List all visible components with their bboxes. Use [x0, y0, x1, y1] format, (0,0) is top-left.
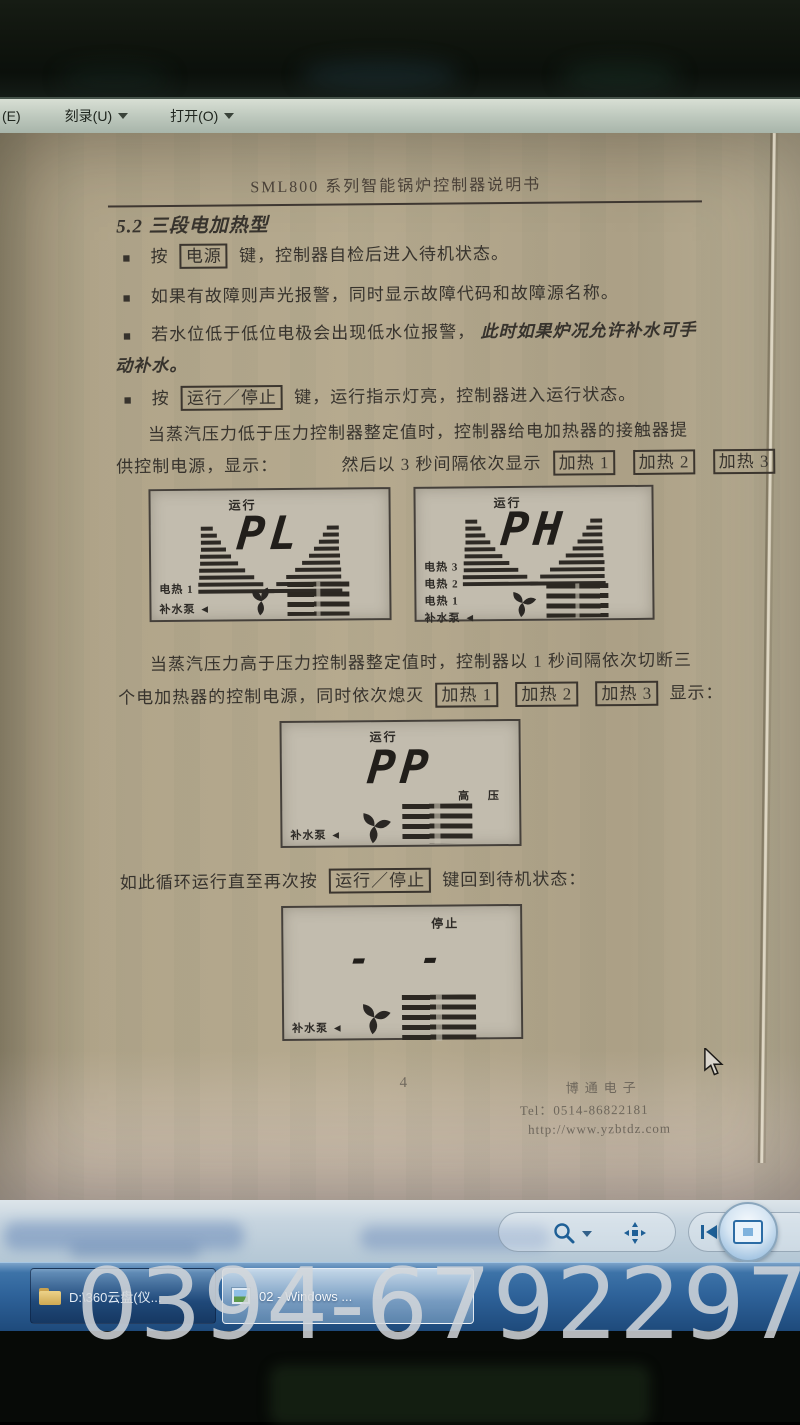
bullet-icon: ■: [123, 328, 132, 343]
slideshow-icon: [733, 1220, 763, 1244]
burn-menu-label: 刻录(U): [65, 106, 112, 126]
bullet-text-emphasis: 此时如果炉况允许补水可手: [480, 320, 696, 341]
fit-to-window-icon[interactable]: [624, 1222, 646, 1244]
lcd-panel-pp: 运行 PP 高 压 补水泵 ◄: [279, 719, 521, 848]
heat2-label: 加热 2: [515, 681, 578, 707]
bullet-icon: ■: [122, 250, 131, 265]
power-key-label: 电源: [180, 243, 228, 269]
lcd-status-label: 停止: [431, 914, 459, 931]
pump-fan-icon: [243, 586, 279, 616]
lcd-heater1-label: 电热 1: [424, 592, 458, 608]
paragraph-line: 如此循环运行直至再次按 运行／停止 键回到待机状态：: [120, 864, 587, 895]
heat3-label: 加热 3: [595, 681, 658, 707]
bullet-power-key: ■ 按 电源 键，控制器自检后进入待机状态。: [122, 239, 509, 270]
heater-element-icon: [402, 803, 472, 844]
mouse-cursor-icon: [702, 1048, 724, 1076]
page-title: SML800 系列智能锅炉控制器说明书: [0, 169, 796, 200]
paragraph-line: 个电加热器的控制电源，同时依次熄灭 加热 1 加热 2 加热 3 显示：: [118, 678, 723, 711]
lcd-heater1-label: 电热 1: [159, 581, 193, 597]
page-number: 4: [400, 1075, 409, 1092]
paragraph-text: 显示：: [669, 683, 723, 702]
footer-tel: Tel：0514-86822181: [520, 1099, 649, 1119]
bullet-text: 如果有故障则声光报警，同时显示故障代码和故障源名称。: [151, 283, 619, 306]
run-stop-key-label: 运行／停止: [181, 385, 283, 411]
lcd-panel-ph: 运行 PH 电热 3 电热 2 电热 1 补水泵 ◄: [413, 485, 654, 622]
previous-image-icon[interactable]: [698, 1223, 720, 1241]
document-photo: SML800 系列智能锅炉控制器说明书 5.2 三段电加热型 ■ 按 电源 键，…: [0, 133, 800, 1200]
lcd-value: - -: [282, 938, 523, 981]
lcd-heater2-label: 电热 2: [424, 575, 458, 591]
bezel-reflection: [560, 62, 680, 90]
run-stop-key-label: 运行／停止: [329, 868, 431, 894]
lcd-feedpump-label: 补水泵 ◄: [159, 601, 211, 617]
bullet-text: 键，运行指示灯亮，控制器进入运行状态。: [294, 385, 636, 407]
title-underline: [108, 200, 702, 207]
watermark-phone-number: 0394-6792297: [76, 1253, 800, 1357]
paragraph-text: 如此循环运行直至再次按: [120, 872, 318, 893]
heat1-label: 加热 1: [553, 450, 616, 476]
pump-fan-icon: [352, 808, 396, 844]
paragraph-text: 供控制电源，显示：: [116, 456, 278, 476]
chevron-down-icon: [118, 113, 128, 119]
bullet-fault-alarm: ■ 如果有故障则声光报警，同时显示故障代码和故障源名称。: [123, 278, 619, 307]
manual-page: SML800 系列智能锅炉控制器说明书 5.2 三段电加热型 ■ 按 电源 键，…: [0, 133, 800, 1200]
lcd-heater3-label: 电热 3: [424, 558, 458, 574]
bullet-text: 按: [150, 247, 168, 266]
lcd-feedpump-label: 补水泵 ◄: [290, 827, 342, 843]
toolbar-partial-menu[interactable]: (E): [2, 108, 21, 124]
lcd-value: PL: [148, 505, 391, 561]
lcd-panel-pl: 运行 PL 电热 1 补水泵 ◄: [148, 487, 391, 622]
bullet-icon: ■: [124, 392, 133, 407]
monitor-bezel-top: [0, 0, 800, 97]
heater-element-icon: [287, 581, 349, 616]
lcd-feedpump-label: 补水泵 ◄: [292, 1020, 344, 1036]
bullet-text: 键，控制器自检后进入待机状态。: [239, 244, 509, 265]
photo-viewer-toolbar: (E) 刻录(U) 打开(O): [0, 97, 800, 133]
pump-fan-icon: [504, 588, 540, 618]
heater-element-icon: [402, 994, 476, 1041]
zoom-icon[interactable]: [552, 1221, 576, 1245]
heater-element-icon: [546, 583, 608, 618]
open-menu-label: 打开(O): [170, 106, 218, 126]
bullet-text: 若水位低于低位电极会出现低水位报警，: [151, 322, 475, 344]
lcd-feedpump-label: 补水泵 ◄: [425, 609, 477, 625]
paragraph-text: 然后以 3 秒间隔依次显示: [341, 454, 541, 475]
chevron-down-icon: [224, 113, 234, 119]
lcd-panel-standby: 停止 - - 补水泵 ◄: [281, 904, 523, 1041]
lcd-highpressure-label: 高 压: [458, 787, 507, 803]
bullet-run-stop-key: ■ 按 运行／停止 键，运行指示灯亮，控制器进入运行状态。: [124, 380, 637, 412]
pump-fan-icon: [352, 999, 396, 1035]
footer-url: http://www.yzbtdz.com: [528, 1121, 671, 1138]
paragraph-line: 当蒸汽压力高于压力控制器整定值时，控制器以 1 秒间隔依次切断三: [150, 645, 692, 675]
zoom-dropdown-icon[interactable]: [582, 1231, 592, 1237]
bullet-low-water: ■ 若水位低于低位电极会出现低水位报警， 此时如果炉况允许补水可手: [123, 315, 697, 345]
footer-company: 博通电子: [514, 1076, 694, 1097]
desk-reflection: [270, 1365, 650, 1425]
bullet-text: 按: [152, 389, 170, 408]
bezel-reflection: [300, 60, 460, 90]
paragraph-text: 键回到待机状态：: [442, 869, 586, 889]
folder-icon: [39, 1288, 61, 1305]
open-menu-button[interactable]: 打开(O): [170, 106, 234, 126]
burn-menu-button[interactable]: 刻录(U): [65, 106, 128, 126]
heat2-label: 加热 2: [633, 449, 696, 475]
bullet-low-water-wrap: 动补水。: [115, 351, 187, 377]
section-heading: 5.2 三段电加热型: [116, 210, 269, 238]
heat3-label: 加热 3: [713, 449, 776, 475]
bezel-reflection: [60, 66, 170, 90]
paragraph-text: 个电加热器的控制电源，同时依次熄灭: [118, 686, 424, 708]
lcd-value: PH: [413, 501, 654, 557]
heat1-label: 加热 1: [435, 682, 498, 708]
paragraph-line: 当蒸汽压力低于压力控制器整定值时，控制器给电加热器的接触器提: [148, 415, 688, 445]
bullet-icon: ■: [123, 290, 132, 305]
paragraph-line: 供控制电源，显示： 然后以 3 秒间隔依次显示 加热 1 加热 2 加热 3: [116, 447, 781, 480]
